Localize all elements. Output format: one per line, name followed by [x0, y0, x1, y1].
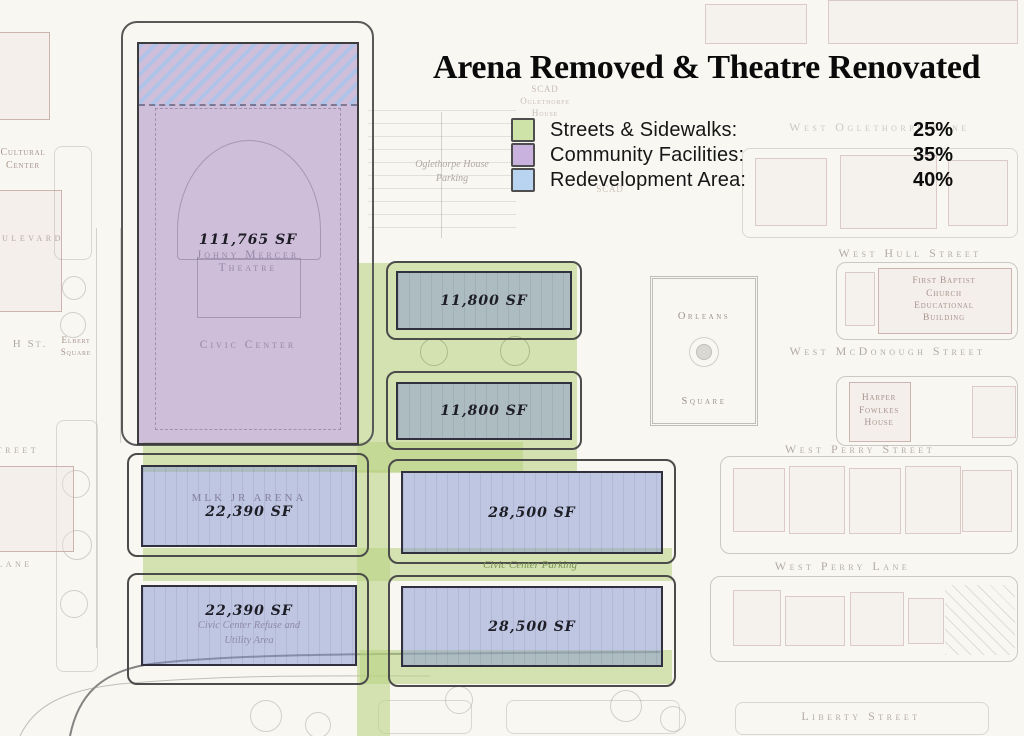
redevelopment-block-28500-north: 28,500 SF — [401, 471, 663, 554]
legend-row-streets: Streets & Sidewalks: 25% — [511, 119, 953, 141]
parking-rows — [368, 110, 516, 240]
tree — [60, 312, 86, 338]
mlk-arena-ghost-label: MLK JR ARENA — [192, 492, 307, 504]
block-outline: 28,500 SF — [388, 575, 676, 687]
redevelopment-block-28500-south: 28,500 SF — [401, 586, 663, 667]
bg-building — [733, 590, 781, 646]
harper-fowlkes-label: Harper Fowlkes House — [849, 384, 909, 438]
bg-building — [0, 32, 50, 120]
legend-value: 25% — [913, 119, 953, 142]
orleans-square: Orleans Square — [650, 276, 758, 426]
bg-building — [905, 466, 961, 534]
first-baptist-building — [878, 268, 1012, 334]
tree — [500, 336, 530, 366]
tree — [60, 590, 88, 618]
bg-median — [378, 700, 472, 734]
bg-hatch-area — [945, 585, 1015, 655]
civic-center-parking-label: Civic Center Parking — [400, 559, 660, 571]
street-line — [96, 228, 97, 648]
page-title: Arena Removed & Theatre Renovated — [433, 49, 1021, 87]
bg-building — [0, 466, 74, 552]
redevelopment-block-22390-north: MLK JR ARENA 22,390 SF — [141, 465, 357, 547]
bg-building — [972, 386, 1016, 438]
bg-building — [845, 272, 875, 326]
redevelopment-block-11800-north: 11,800 SF — [396, 271, 572, 330]
legend-value: 40% — [913, 169, 953, 192]
bg-building — [785, 596, 845, 646]
block-area-label: 22,390 SF — [205, 603, 293, 619]
block-outline: 22,390 SF Civic Center Refuse and Utilit… — [127, 573, 369, 685]
street-label-west-mcdonough: West McDonough Street — [755, 344, 1020, 359]
oglethorpe-parking-label: Oglethorpe House Parking — [390, 158, 514, 186]
first-baptist-label: First Baptist Church Educational Buildin… — [878, 270, 1010, 330]
tree — [610, 690, 642, 722]
block-area-label: 22,390 SF — [205, 504, 293, 520]
community-facility-theatre: 111,765 SF Johny Mercer Theatre Civic Ce… — [137, 42, 359, 445]
block-outline: 11,800 SF — [386, 371, 582, 450]
fountain-outer — [689, 337, 719, 367]
bg-building — [908, 598, 944, 644]
theatre-area-label: 111,765 SF — [139, 232, 357, 248]
legend-row-redevelopment: Redevelopment Area: 40% — [511, 169, 953, 191]
refuse-note-line1: Civic Center Refuse and — [198, 619, 300, 633]
bg-building — [789, 466, 845, 534]
bg-block — [720, 456, 1018, 554]
bg-block — [710, 576, 1018, 662]
theatre-name-line2: Theatre — [139, 262, 357, 274]
median-strip — [56, 420, 98, 672]
cultural-center-label: Cultural Center — [0, 144, 46, 174]
bg-block — [836, 262, 1018, 340]
community-swatch — [511, 143, 535, 167]
bg-block — [836, 376, 1018, 446]
tree — [305, 712, 331, 736]
bg-building — [828, 0, 1018, 44]
streets-swatch — [511, 118, 535, 142]
tree — [420, 338, 448, 366]
street-label-west-perry-lane: West Perry Lane — [735, 559, 950, 574]
redevelopment-block-11800-south: 11,800 SF — [396, 382, 572, 440]
block-area-label: 11,800 SF — [440, 293, 528, 309]
tree — [445, 686, 473, 714]
site-plan: SCAD Oglethorpe House Oglethorpe House P… — [0, 0, 1024, 736]
liberty-street-median — [735, 702, 989, 735]
street-label-boulevard: ulevard — [0, 232, 70, 244]
bg-building — [948, 160, 1008, 226]
legend-label: Redevelopment Area: — [550, 169, 746, 192]
legend-label: Community Facilities: — [550, 144, 744, 167]
bg-building — [849, 468, 901, 534]
redevelopment-block-22390-south: 22,390 SF Civic Center Refuse and Utilit… — [141, 585, 357, 666]
elbert-square-label: Elbert Square — [54, 334, 98, 360]
tree — [62, 276, 86, 300]
legend-row-community: Community Facilities: 35% — [511, 144, 953, 166]
block-area-label: 11,800 SF — [440, 403, 528, 419]
redevelopment-swatch — [511, 168, 535, 192]
tree — [660, 706, 686, 732]
bg-building — [962, 470, 1012, 532]
tree — [62, 530, 92, 560]
legend-label: Streets & Sidewalks: — [550, 119, 737, 142]
street-label-liberty: Liberty Street — [735, 709, 987, 724]
median-strip — [54, 146, 92, 260]
legend: Streets & Sidewalks: 25% Community Facil… — [511, 119, 953, 194]
bg-building — [705, 4, 807, 44]
harper-fowlkes-building — [849, 382, 911, 442]
block-outline: 28,500 SF — [388, 459, 676, 564]
legend-value: 35% — [913, 144, 953, 167]
bg-building — [733, 468, 785, 532]
parking-divider — [441, 112, 442, 238]
orleans-label: Orleans — [653, 311, 755, 322]
tree — [62, 470, 90, 498]
refuse-note-line2: Utility Area — [224, 634, 273, 648]
block-outline: 11,800 SF — [386, 261, 582, 340]
scad-oglethorpe-house-label: SCAD Oglethorpe House — [495, 82, 595, 122]
street-label-h-st: H St. — [8, 338, 52, 350]
square-label: Square — [653, 396, 755, 407]
hatched-demolition-area — [139, 44, 357, 106]
block-area-label: 28,500 SF — [488, 505, 576, 521]
bg-median — [506, 700, 680, 734]
block-outline: MLK JR ARENA 22,390 SF — [127, 453, 369, 557]
fountain-inner — [696, 344, 712, 360]
tree — [250, 700, 282, 732]
block-area-label: 28,500 SF — [488, 619, 576, 635]
bg-building — [850, 592, 904, 646]
civic-center-label: Civic Center — [139, 339, 357, 351]
street-label-partial-street: treet — [0, 444, 44, 456]
street-label-partial-lane: lane — [0, 558, 40, 570]
street-label-west-hull: West Hull Street — [820, 246, 1000, 261]
bg-building — [0, 190, 62, 312]
theatre-name-line1: Johny Mercer — [139, 249, 357, 261]
street-label-west-perry-street: West Perry Street — [745, 442, 975, 457]
